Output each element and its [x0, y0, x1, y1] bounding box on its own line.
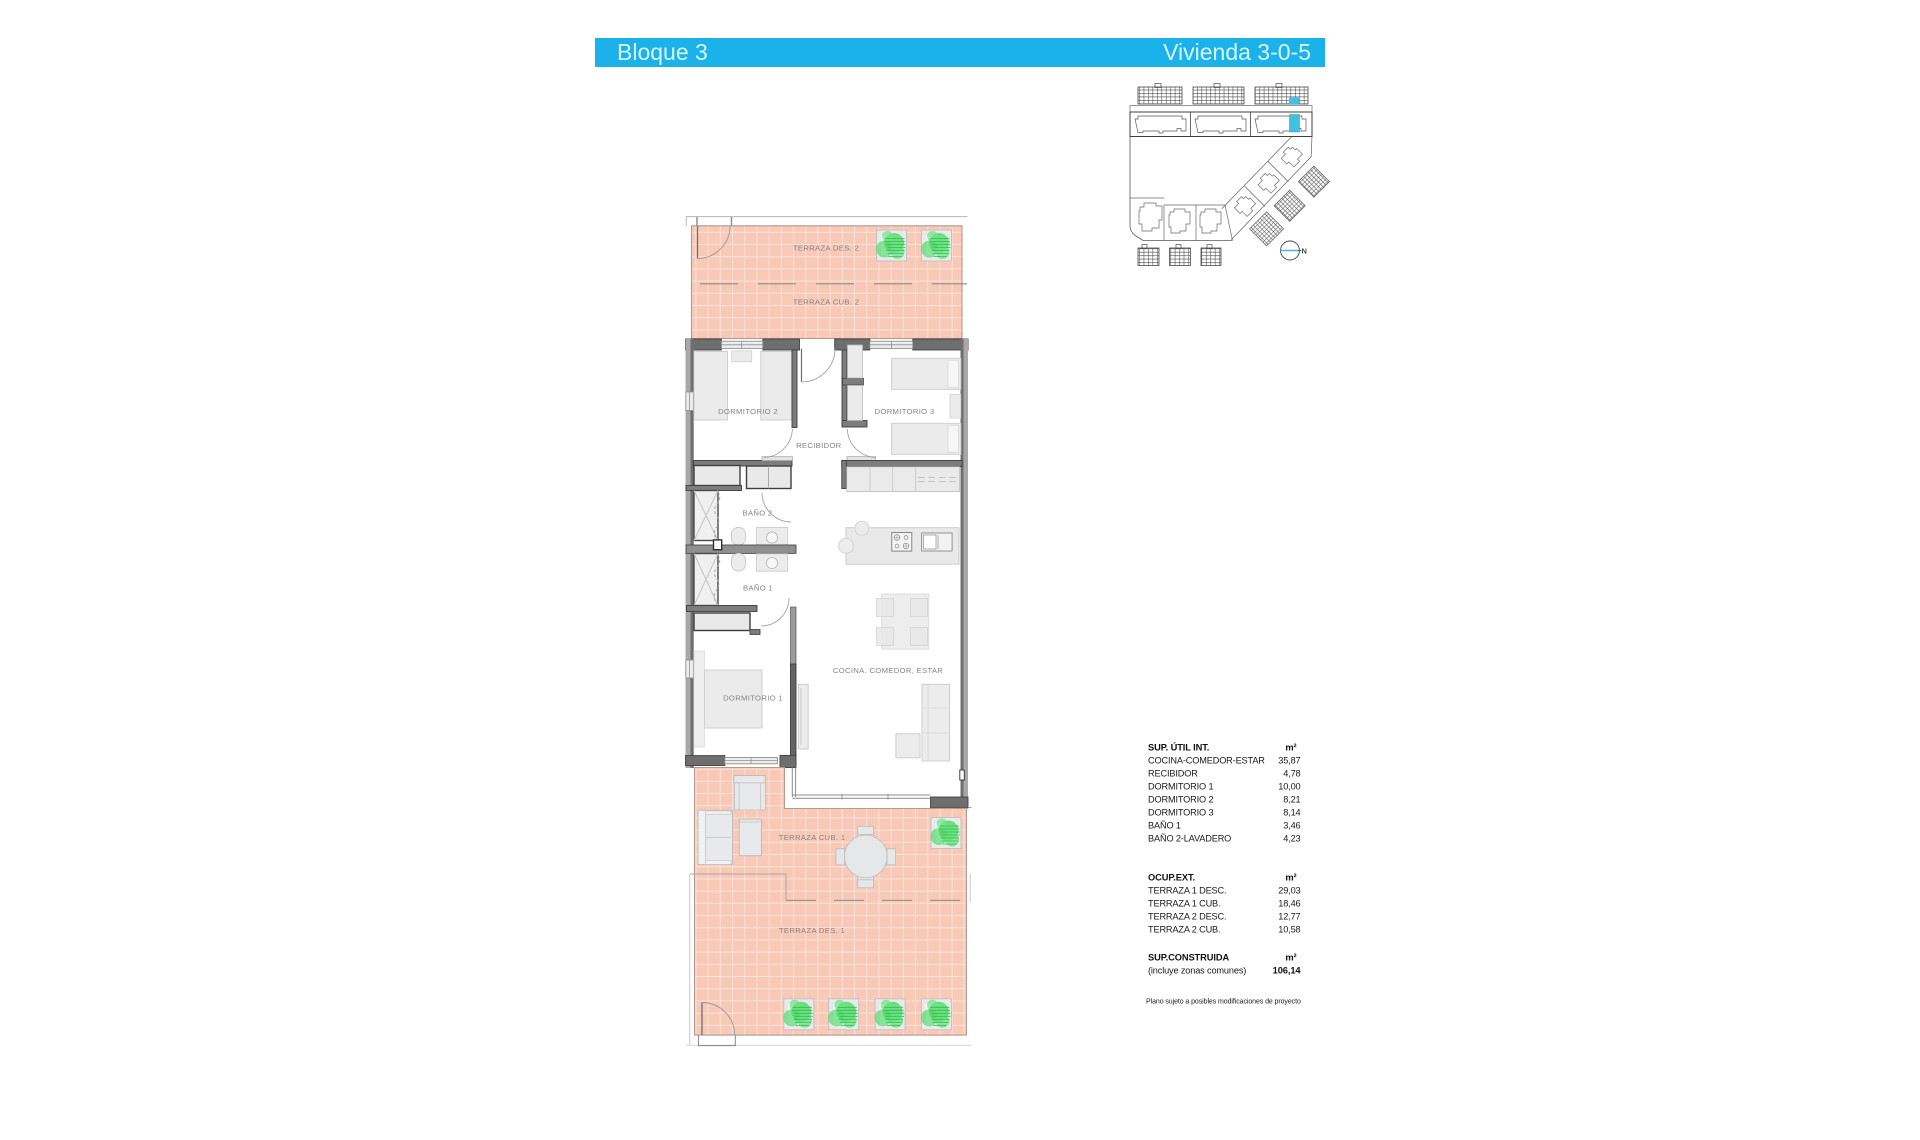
svg-text:COCINA. COMEDOR, ESTAR: COCINA. COMEDOR, ESTAR	[833, 666, 943, 675]
svg-text:TERRAZA CUB. 1: TERRAZA CUB. 1	[779, 833, 846, 842]
svg-text:3,46: 3,46	[1283, 821, 1300, 831]
svg-text:DORMITORIO 1: DORMITORIO 1	[1148, 782, 1213, 792]
svg-text:8,21: 8,21	[1283, 795, 1300, 805]
svg-text:OCUP.EXT.: OCUP.EXT.	[1148, 873, 1195, 883]
svg-text:RECIBIDOR: RECIBIDOR	[1148, 769, 1198, 779]
svg-text:COCINA-COMEDOR-ESTAR: COCINA-COMEDOR-ESTAR	[1148, 756, 1265, 766]
svg-text:35,87: 35,87	[1278, 756, 1300, 766]
svg-text:m²: m²	[1285, 743, 1296, 753]
svg-text:TERRAZA CUB. 2: TERRAZA CUB. 2	[793, 298, 860, 307]
svg-text:Bloque 3: Bloque 3	[617, 39, 708, 65]
svg-text:BAÑO 1: BAÑO 1	[1148, 821, 1181, 831]
svg-text:N: N	[1302, 247, 1307, 256]
svg-text:18,46: 18,46	[1278, 899, 1300, 909]
svg-text:4,23: 4,23	[1283, 834, 1300, 844]
svg-text:SUP.CONSTRUIDA: SUP.CONSTRUIDA	[1148, 953, 1229, 963]
svg-text:m²: m²	[1285, 873, 1296, 883]
svg-text:TERRAZA DES. 1: TERRAZA DES. 1	[779, 926, 845, 935]
svg-text:(incluye zonas comunes): (incluye zonas comunes)	[1148, 966, 1246, 976]
svg-text:8,14: 8,14	[1283, 808, 1300, 818]
svg-text:DORMITORIO 3: DORMITORIO 3	[1148, 808, 1213, 818]
svg-text:TERRAZA 1 DESC.: TERRAZA 1 DESC.	[1148, 886, 1226, 896]
svg-text:m²: m²	[1285, 953, 1296, 963]
svg-text:106,14: 106,14	[1273, 966, 1302, 976]
svg-text:BAÑO 2-LAVADERO: BAÑO 2-LAVADERO	[1148, 834, 1231, 844]
svg-text:12,77: 12,77	[1278, 912, 1300, 922]
svg-text:RECIBIDOR: RECIBIDOR	[796, 441, 842, 450]
svg-text:TERRAZA DES. 2: TERRAZA DES. 2	[793, 244, 859, 253]
svg-text:DORMITORIO 2: DORMITORIO 2	[718, 407, 778, 416]
svg-text:Plano sujeto a posibles modifi: Plano sujeto a posibles modificaciones d…	[1146, 999, 1301, 1006]
svg-text:29,03: 29,03	[1278, 886, 1300, 896]
svg-text:Vivienda 3-0-5: Vivienda 3-0-5	[1163, 39, 1311, 65]
svg-text:TERRAZA 2 CUB.: TERRAZA 2 CUB.	[1148, 925, 1220, 935]
svg-text:SUP. ÚTIL INT.: SUP. ÚTIL INT.	[1148, 742, 1209, 753]
svg-text:BAÑO 1: BAÑO 1	[743, 584, 773, 593]
svg-text:4,78: 4,78	[1283, 769, 1300, 779]
svg-text:10,00: 10,00	[1278, 782, 1300, 792]
svg-text:DORMITORIO 2: DORMITORIO 2	[1148, 795, 1213, 805]
svg-text:TERRAZA 1 CUB.: TERRAZA 1 CUB.	[1148, 899, 1220, 909]
svg-text:10,58: 10,58	[1278, 925, 1300, 935]
svg-text:DORMITORIO 1: DORMITORIO 1	[723, 694, 783, 703]
svg-text:DORMITORIO 3: DORMITORIO 3	[875, 407, 935, 416]
svg-text:TERRAZA 2 DESC.: TERRAZA 2 DESC.	[1148, 912, 1226, 922]
